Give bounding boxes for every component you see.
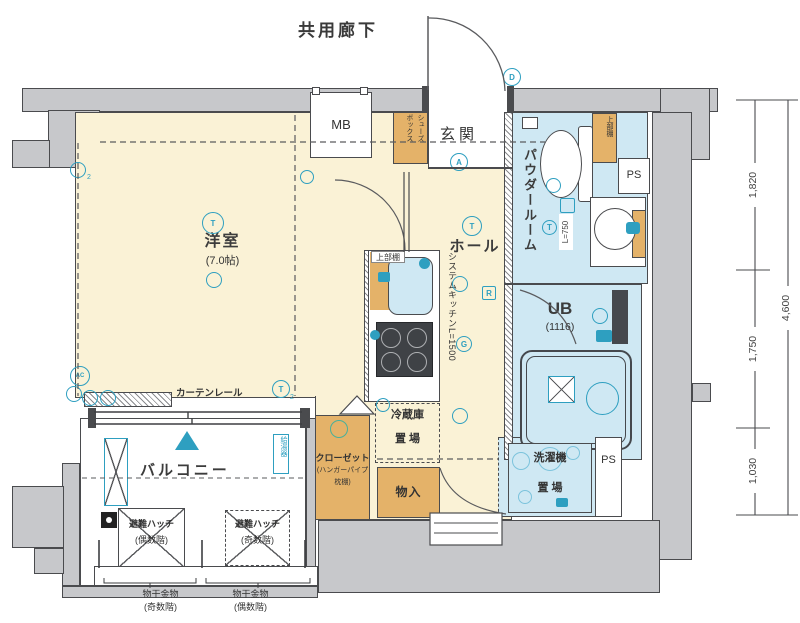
- stove-burner-2: [407, 328, 427, 348]
- meter-box-tick-right: [360, 87, 368, 95]
- fridge-label-1: 冷蔵庫: [375, 408, 440, 424]
- symbol-ac: AC: [70, 366, 90, 386]
- closet-label-3: 枕棚): [312, 478, 373, 489]
- symbol-pipe-3: [100, 390, 116, 406]
- entrance-jamb-left: [422, 86, 429, 113]
- ps-bottom-label: PS: [595, 452, 622, 470]
- wall-right-column: [652, 112, 692, 560]
- vanity-faucet-icon: [626, 222, 640, 234]
- laundry-label-1: 洗濯機: [508, 450, 592, 468]
- storage-label: 物入: [377, 467, 440, 518]
- wall-balcony-left: [62, 463, 80, 586]
- water-heater-label: 給湯器: [276, 436, 287, 472]
- kitchen-upper-shelf-label: 上部棚: [371, 251, 405, 263]
- symbol-light-hall: T: [462, 216, 482, 236]
- symbol-downlight-powder: [546, 178, 561, 193]
- entrance-opening: [428, 86, 508, 114]
- symbol-vent-powder: [560, 198, 575, 213]
- powder-room-label: パウダールーム: [519, 148, 537, 278]
- wall-left-bottom-1: [12, 486, 64, 548]
- dim-4600: 4,600: [779, 286, 793, 330]
- bedroom-label: 洋室: [160, 230, 285, 254]
- balcony-label: バルコニー: [140, 462, 270, 481]
- corridor-label: 共用廊下: [298, 20, 408, 41]
- ps-top-label: PS: [618, 158, 650, 194]
- floor-plan: 共用廊下 MB シューズ ボックス 玄関 パウダールーム 上部棚 L=7: [0, 0, 800, 623]
- ub-size-label: (1116): [510, 320, 610, 336]
- escape-hatch-even-label-1: 避難ハッチ: [116, 518, 187, 532]
- dim-1820: 1,820: [746, 163, 760, 207]
- symbol-outlet-top-right: [300, 170, 314, 184]
- symbol-r-hall: R: [482, 286, 496, 300]
- hall-label: ホール: [425, 236, 525, 258]
- laundry-label-2: 置 場: [508, 480, 592, 498]
- escape-hatch-odd-label-1: 避難ハッチ: [223, 518, 292, 532]
- washer-faucet-icon: [556, 498, 568, 507]
- symbol-g-hall: G: [456, 336, 472, 352]
- symbol-outlet-window: T: [272, 380, 290, 398]
- stove-burner-1: [381, 328, 401, 348]
- stove-burner-3: [381, 352, 401, 372]
- closet-label-1: クローゼット: [312, 452, 373, 465]
- bedroom-size-label: (7.0帖): [160, 254, 285, 270]
- symbol-outlet-window-sub: 2: [290, 394, 294, 403]
- closet-light-icon: [330, 420, 348, 438]
- wall-left-bottom-2: [34, 548, 64, 574]
- drying-odd-label-2: (奇数階): [128, 601, 193, 614]
- symbol-genkan-a: A: [450, 153, 468, 171]
- kitchen-sink-faucet-dot: [419, 258, 430, 269]
- symbol-downlight-bedroom: [206, 272, 222, 288]
- drying-even-label-1: 物干金物: [218, 588, 283, 601]
- powder-vent-box: [522, 117, 538, 129]
- symbol-outlet-corner: [70, 162, 86, 178]
- ub-label: UB: [510, 298, 610, 320]
- dim-1030: 1,030: [746, 449, 760, 493]
- symbol-pipe-1: [66, 386, 82, 402]
- entrance-door-arc: [428, 18, 505, 91]
- ps-bottom-box: [595, 437, 622, 517]
- drying-odd-label-1: 物干金物: [128, 588, 193, 601]
- drain-box-dot: [106, 517, 112, 523]
- powder-upper-shelf-label: 上部棚: [596, 116, 613, 162]
- bathtub-circle: [586, 382, 619, 415]
- wall-bottom-slab: [318, 520, 660, 593]
- vanity-width-dim: L=750: [559, 214, 573, 250]
- fridge-label-2: 置 場: [375, 432, 440, 448]
- closet-label-2: (ハンガーパイプ: [310, 466, 375, 477]
- meter-box-label: MB: [310, 92, 372, 158]
- symbol-pipe-2: [82, 390, 98, 406]
- drying-even-label-2: (偶数階): [218, 601, 283, 614]
- symbol-outlet-sub: 2: [87, 174, 91, 183]
- shower-panel: [612, 290, 628, 344]
- symbol-light-bedroom: T: [202, 212, 224, 234]
- stove-gas-icon: [370, 330, 380, 340]
- escape-hatch-odd-label-2: (奇数階): [223, 534, 292, 548]
- window-frame-right: [300, 408, 310, 428]
- balcony-railing: [94, 566, 318, 586]
- shoe-box-label: シューズ ボックス: [396, 114, 426, 164]
- symbol-downlight-hall-1: [452, 276, 468, 292]
- symbol-light-powder: T: [542, 220, 557, 235]
- genkan-label: 玄関: [440, 126, 510, 145]
- system-kitchen-label: システムキッチンL=1500: [443, 252, 457, 407]
- escape-hatch-even-label-2: (偶数階): [116, 534, 187, 548]
- symbol-downlight-hall-2: [452, 408, 468, 424]
- dim-1750: 1,750: [746, 327, 760, 371]
- wall-right-protrusion: [692, 383, 711, 402]
- water-heater-box: [104, 438, 128, 506]
- entrance-jamb-right: [507, 86, 514, 113]
- curtain-rail-label: カーテンレール: [176, 388, 256, 400]
- kitchen-faucet-icon: [378, 272, 390, 282]
- stove-burner-4: [407, 352, 427, 372]
- meter-box-tick-left: [312, 87, 320, 95]
- wall-left-stub: [12, 140, 50, 168]
- window-frame-left: [88, 408, 96, 428]
- bathtub-drain-square: [548, 376, 575, 403]
- symbol-door-d: D: [503, 68, 521, 86]
